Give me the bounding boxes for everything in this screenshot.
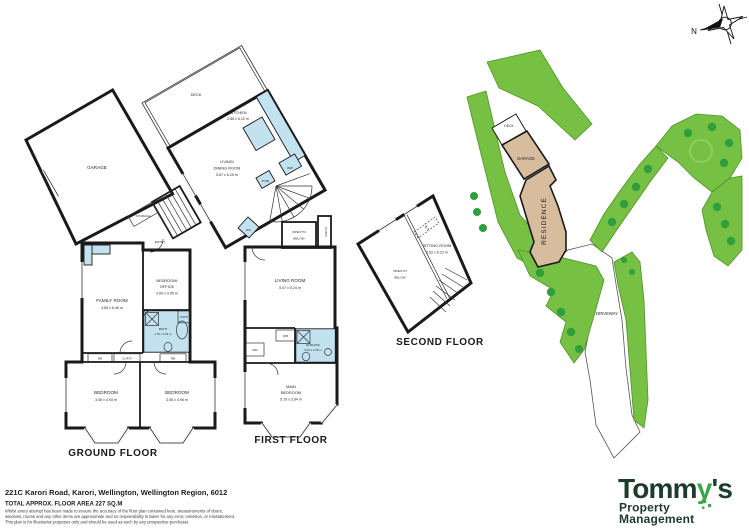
open-below-walls bbox=[282, 222, 316, 248]
bath-label: BATH bbox=[159, 327, 167, 331]
bedroom-office-label1: BEDROOM/ bbox=[156, 278, 178, 283]
site-plan: DECK GARAGE RESIDENCE DRIVEWAY bbox=[467, 50, 742, 458]
ground-floor-plan: GARAGE STORAGE ENTRY CUP'D bbox=[26, 90, 215, 459]
kitchen-island bbox=[243, 117, 275, 151]
compass-icon: N bbox=[691, 4, 747, 44]
living-room-label: LIVING ROOM bbox=[275, 278, 306, 283]
logo-brand-post: 's bbox=[712, 473, 733, 504]
kitchen-dims: 2.88 x 6.22 m bbox=[227, 117, 249, 121]
cupboard-label: CUP'D bbox=[324, 227, 328, 237]
main-bedroom-label1: MAIN bbox=[286, 384, 296, 389]
deck-label: DECK bbox=[191, 92, 202, 97]
lawn-arm-right bbox=[702, 176, 742, 266]
compass-north-label: N bbox=[691, 27, 697, 36]
first-windows bbox=[183, 174, 337, 437]
second-open-below-label2: BELOW bbox=[394, 276, 405, 280]
bedroom-left-dims: 3.06 x 4.93 m bbox=[95, 398, 117, 402]
ground-floor-title: GROUND FLOOR bbox=[68, 448, 158, 459]
family-room-dims: 3.85 x 6.46 m bbox=[101, 306, 123, 310]
living-dining-label1: LIVING/ bbox=[220, 159, 235, 164]
disclaimer-line3: This plan is for illustrative purposes o… bbox=[5, 520, 189, 525]
site-residence-label: RESIDENCE bbox=[541, 197, 548, 245]
bedroom-right-label: BEDROOM bbox=[165, 390, 189, 395]
powder-label: P'DR bbox=[262, 179, 270, 183]
floorplan-sheet: GARAGE STORAGE ENTRY CUP'D bbox=[0, 0, 749, 529]
logo-key-letter: y bbox=[697, 473, 713, 504]
bedroom-office-label2: OFFICE bbox=[160, 284, 175, 289]
stair-treads bbox=[152, 189, 196, 239]
floorplan-canvas: GARAGE STORAGE ENTRY CUP'D bbox=[0, 0, 749, 529]
sitting-room-dims: 2.62 x 6.22 m bbox=[426, 251, 448, 255]
family-bench-side bbox=[84, 245, 92, 265]
site-garage-label: GARAGE bbox=[517, 156, 535, 161]
living-dining-dims: 5.67 x 6.25 m bbox=[216, 173, 238, 177]
wardrobe-a-label: WR bbox=[283, 334, 289, 338]
tommys-logo: Tommy's Property Management bbox=[618, 473, 732, 526]
entry-label: ENTRY bbox=[155, 240, 165, 244]
robe-left-label: RB bbox=[98, 356, 102, 360]
open-below-label1: OPEN TO bbox=[292, 230, 306, 234]
second-open-below-label1: OPEN TO bbox=[393, 269, 407, 273]
bath-cupboard-label: CUP'D bbox=[180, 315, 188, 319]
first-floor-plan: DECK KITCHEN 2.88 x 6.22 m LIVING/ DININ… bbox=[142, 46, 337, 447]
bedroom-left-label: BEDROOM bbox=[94, 390, 118, 395]
balustrade bbox=[407, 214, 450, 298]
wc-label: WC bbox=[246, 228, 252, 232]
first-stairs bbox=[270, 174, 312, 222]
skylight bbox=[414, 225, 428, 238]
disclaimer-line2: windows, rooms and any other items are a… bbox=[5, 514, 235, 519]
wardrobe-b-label: WR bbox=[252, 348, 258, 352]
floor-area-text: TOTAL APPROX. FLOOR AREA 227 SQ.M bbox=[5, 502, 122, 508]
open-below-label2: BELOW bbox=[293, 237, 304, 241]
main-bedroom-dims: 5.10 x 3.84 m bbox=[280, 398, 302, 402]
second-floor-walls bbox=[358, 196, 471, 332]
sitting-room-label: SITTING ROOM bbox=[423, 243, 452, 248]
robe-right-label: RB bbox=[171, 356, 175, 360]
bath-dims: 1.76 x 2.51 m bbox=[154, 332, 172, 336]
ensuite-dims: 3.03 x 2.26 m bbox=[304, 348, 322, 352]
hall-cupboard-label: CUP'D bbox=[122, 356, 132, 360]
site-driveway-label: DRIVEWAY bbox=[596, 311, 618, 316]
lawn-arm-left bbox=[590, 146, 668, 252]
main-bedroom-label2: BEDROOM bbox=[281, 390, 301, 395]
bedroom-office-dims: 2.69 x 3.05 m bbox=[156, 292, 178, 296]
logo-wordmark: Tommy's bbox=[618, 473, 732, 504]
storage-label: STORAGE bbox=[135, 214, 150, 218]
skylight bbox=[425, 217, 439, 230]
living-dining-label2: DINING ROOM bbox=[214, 166, 241, 171]
address-text: 221C Karori Road, Karori, Wellington, We… bbox=[5, 488, 227, 497]
bedroom-right-dims: 3.06 x 4.96 m bbox=[166, 398, 188, 402]
disclaimer-line1: Whilst every attempt has been made to en… bbox=[5, 509, 223, 514]
pantry-label: WIP bbox=[287, 166, 293, 170]
footer: 221C Karori Road, Karori, Wellington, We… bbox=[5, 488, 235, 525]
logo-subtitle-2: Management bbox=[619, 512, 694, 526]
kitchen-label: KITCHEN bbox=[229, 110, 246, 115]
first-floor-title: FIRST FLOOR bbox=[254, 435, 327, 446]
living-room-dims: 5.07 x 5.24 m bbox=[279, 286, 301, 290]
garage-label: GARAGE bbox=[87, 165, 107, 170]
logo-brand-pre: Tomm bbox=[618, 473, 697, 504]
compass-star bbox=[708, 6, 743, 39]
site-deck-label: DECK bbox=[504, 124, 514, 128]
family-room-label: FAMILY ROOM bbox=[96, 298, 128, 303]
second-floor-title: SECOND FLOOR bbox=[396, 337, 484, 348]
ensuite-label: ENSUITE bbox=[306, 343, 319, 347]
second-floor-plan: OPEN TO BELOW SITTING ROOM 2.62 x 6.22 m… bbox=[358, 196, 484, 348]
